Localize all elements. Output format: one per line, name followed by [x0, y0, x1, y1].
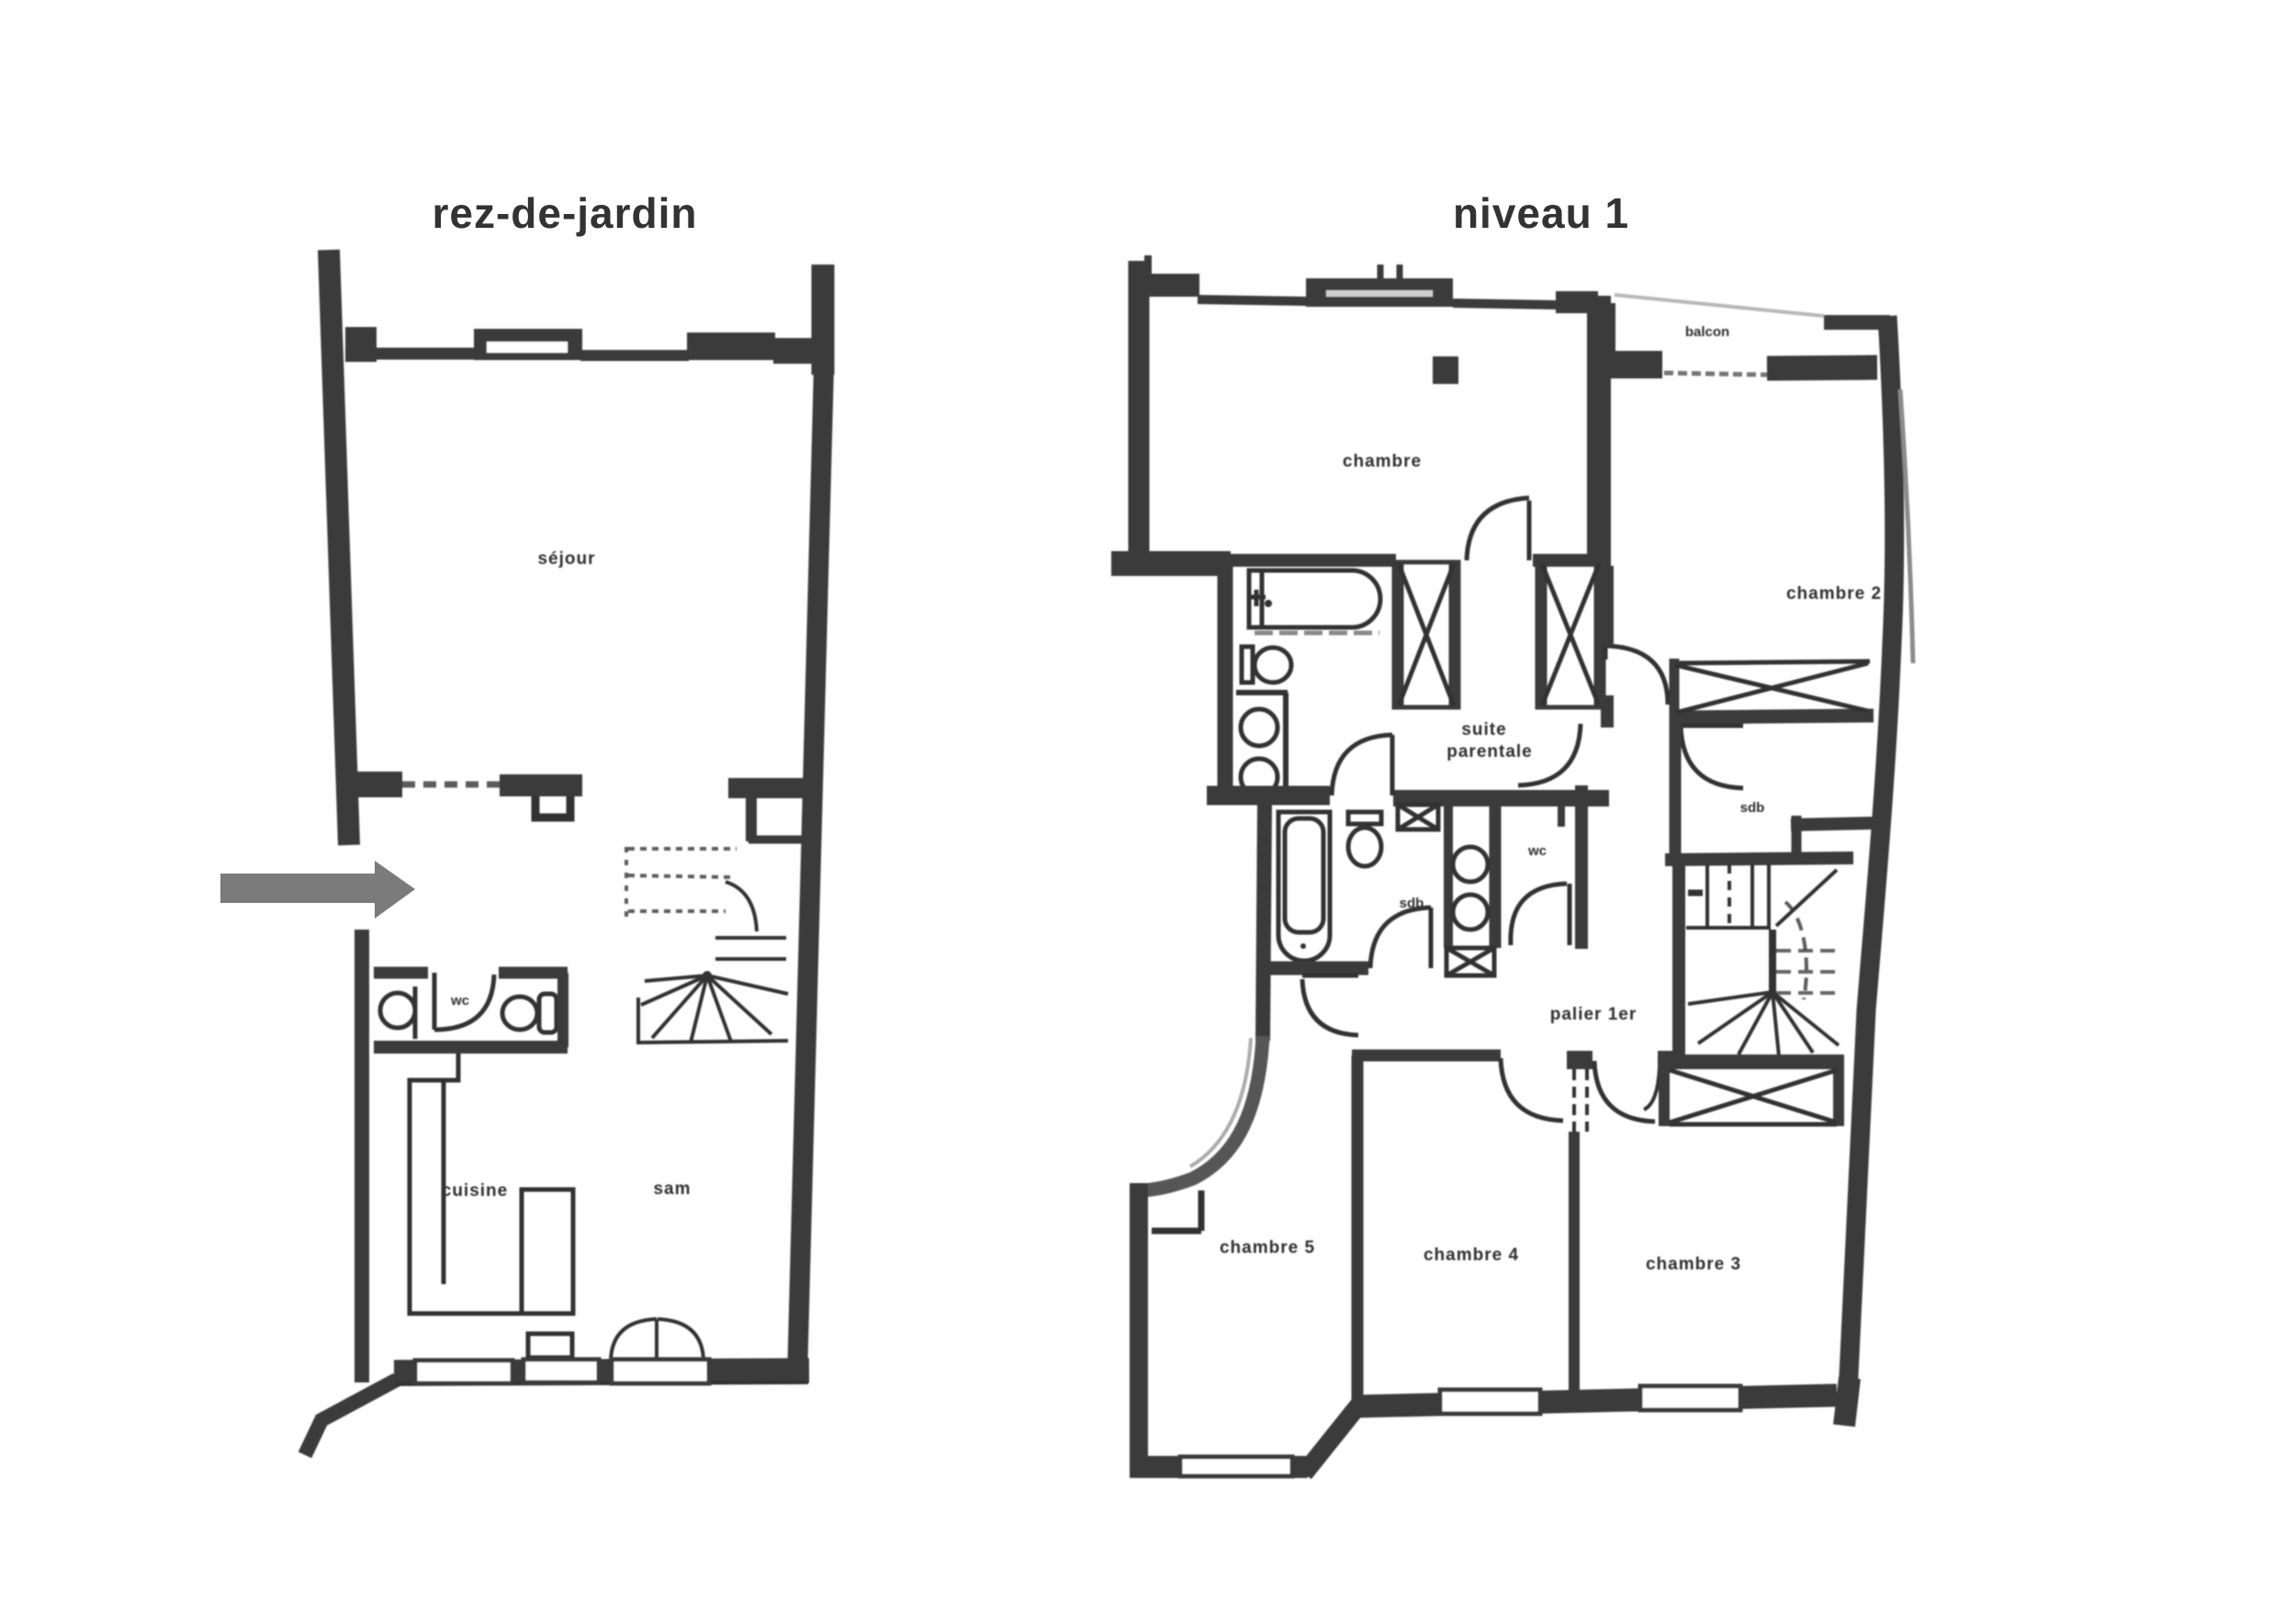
- svg-text:sdb: sdb: [1740, 800, 1765, 816]
- svg-text:wc: wc: [450, 993, 469, 1009]
- svg-text:chambre 3: chambre 3: [1646, 1255, 1741, 1274]
- svg-text:séjour: séjour: [537, 549, 595, 569]
- svg-text:parentale: parentale: [1446, 742, 1532, 761]
- svg-text:wc: wc: [1527, 843, 1547, 859]
- svg-text:niveau 1: niveau 1: [1453, 189, 1629, 237]
- svg-text:chambre 5: chambre 5: [1220, 1238, 1315, 1257]
- svg-text:chambre 2: chambre 2: [1786, 584, 1882, 603]
- svg-text:suite: suite: [1461, 720, 1506, 739]
- svg-text:chambre 4: chambre 4: [1424, 1246, 1519, 1265]
- svg-text:rez-de-jardin: rez-de-jardin: [432, 189, 697, 237]
- svg-text:sam: sam: [653, 1179, 691, 1199]
- svg-text:palier 1er: palier 1er: [1550, 1005, 1638, 1024]
- svg-text:balcon: balcon: [1685, 324, 1729, 340]
- svg-text:chambre: chambre: [1343, 452, 1422, 471]
- svg-text:cuisine: cuisine: [442, 1181, 508, 1201]
